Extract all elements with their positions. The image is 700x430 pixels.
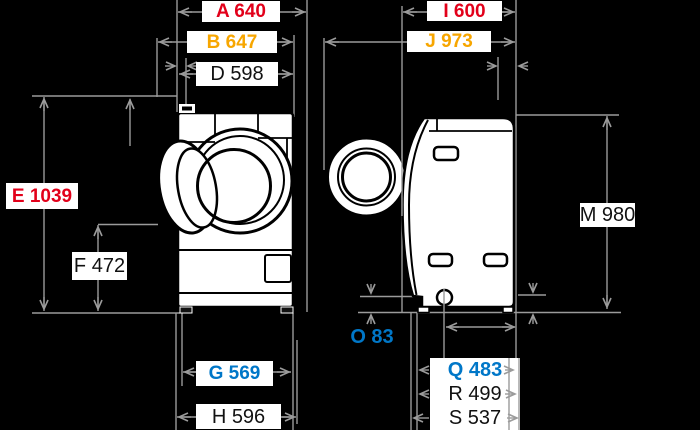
dim-label-a: A 640 (202, 1, 280, 22)
dim-label-d: D 598 (196, 62, 278, 86)
dim-label-m: M 980 (580, 203, 635, 227)
dim-label-r: R 499 (430, 382, 520, 406)
dimension-lines (44, 12, 607, 417)
side-slot-back (484, 254, 507, 266)
dim-label-e: E 1039 (6, 183, 78, 209)
dim-label-q: Q 483 (430, 358, 520, 382)
side-body (403, 118, 515, 307)
hinge-mark (182, 107, 192, 111)
side-foot-back (503, 307, 513, 313)
filter-access-panel (265, 255, 291, 282)
dim-label-g: G 569 (196, 361, 273, 386)
dim-label-h: H 596 (196, 404, 281, 429)
washing-machine-dimension-diagram: A 640 B 647 D 598 E 1039 F 472 G 569 H 5… (0, 0, 700, 430)
side-foot-front (418, 307, 429, 313)
front-foot-left (180, 307, 192, 313)
dim-label-i: I 600 (427, 1, 502, 21)
dim-label-f: F 472 (72, 252, 127, 280)
front-foot-right (281, 307, 293, 313)
reference-lines (32, 0, 621, 430)
handle-recess (434, 147, 458, 160)
dim-label-o: O 83 (342, 324, 402, 350)
dim-label-b: B 647 (187, 31, 277, 53)
side-view-drawing (403, 118, 515, 313)
side-slot-front (429, 254, 452, 266)
open-door-side-view (328, 139, 405, 216)
dim-label-s: S 537 (430, 406, 520, 430)
dim-label-j: J 973 (407, 31, 491, 52)
front-view-drawing (152, 104, 293, 313)
dim-label-group-qrs: Q 483 R 499 S 537 (430, 358, 520, 430)
